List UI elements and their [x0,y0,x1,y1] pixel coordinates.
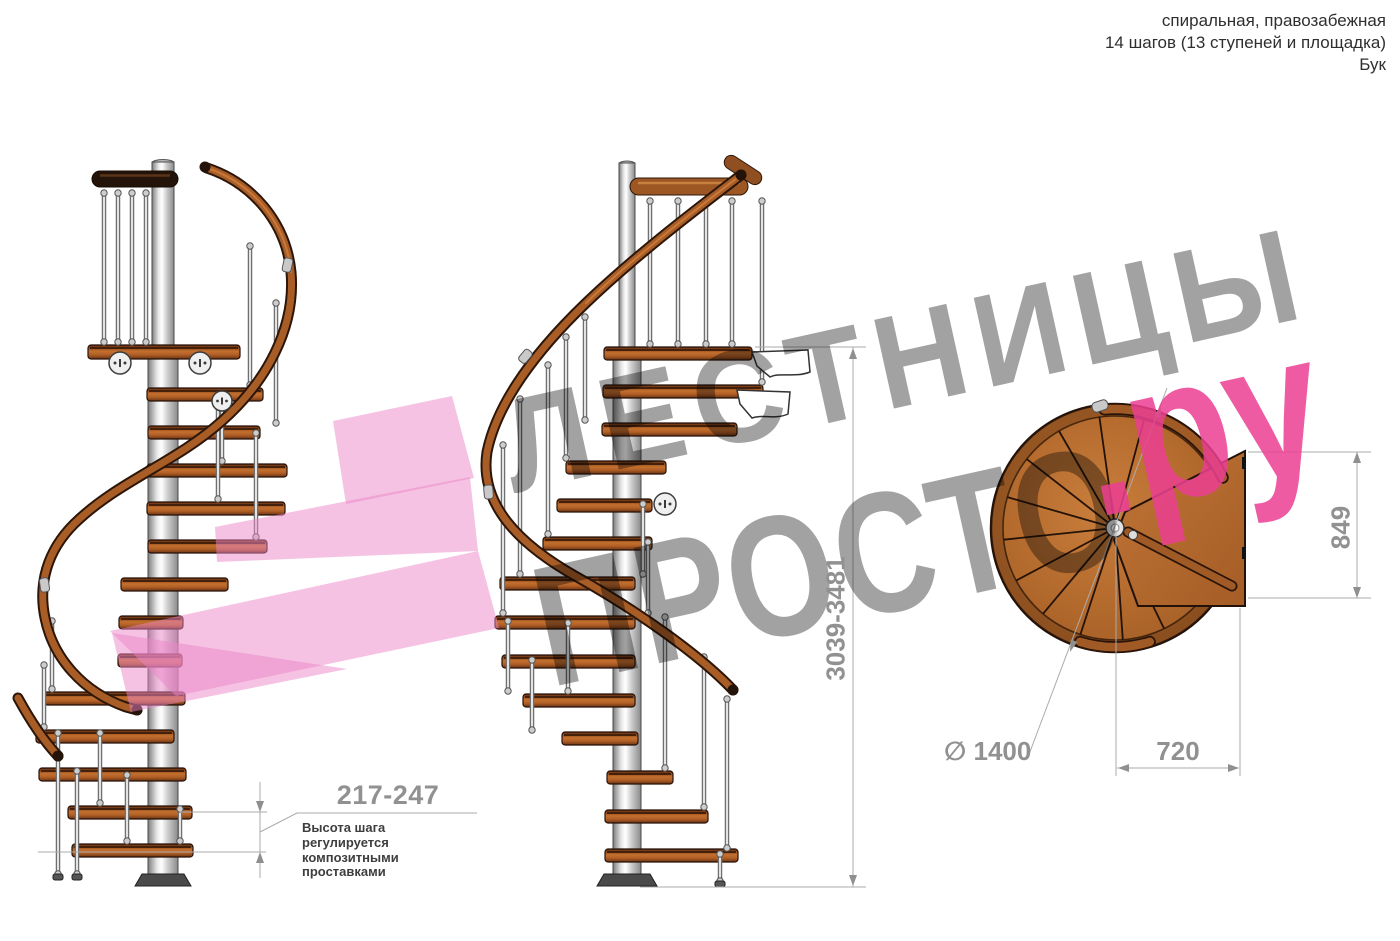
note-line: регулируется [302,836,462,851]
base-flange-left [53,874,191,886]
dimension-arrows [256,348,1361,886]
staircase-technical-drawing [0,0,1400,941]
dimension-total-height: 3039-3481 [821,538,852,700]
top-handrail-middle [630,153,764,195]
dimension-step-note: Высота шага регулируется композитными пр… [302,821,462,880]
center-pole-lower [148,345,178,877]
tread [566,461,666,474]
plan-center-pole [1106,519,1124,537]
watermark-word-ru: .ру [929,272,1400,578]
tread [562,732,638,745]
center-pole-upper [619,163,635,349]
tread [147,464,287,477]
drawing-sheet: ЛЕСТНИЦЫ ПРОСТО .ру 217-247 Высота шага … [0,0,1400,941]
tread [557,499,652,512]
plan-view [991,399,1246,652]
title-steps: 14 шагов (13 ступеней и площадка) [1105,32,1386,54]
spiral-handrail-middle [483,170,746,696]
staircase-side-view-left [18,160,293,887]
tread-brackets-middle [737,350,810,418]
treads-left-view [36,345,287,857]
note-line: проставками [302,865,462,880]
center-pole-upper [152,162,174,347]
title-block: спиральная, правозабежная 14 шагов (13 с… [1105,10,1386,76]
title-type: спиральная, правозабежная [1105,10,1386,32]
tread [88,345,240,359]
note-line: композитными [302,851,462,866]
watermark-word-lestnitsy: ЛЕСТНИЦЫ [473,203,1336,517]
tread [605,810,708,823]
plan-handrail-arcs [1080,399,1223,647]
pink-logo-arrow [0,0,1400,941]
staircase-side-view-middle [483,153,810,887]
balusters-left-view [41,190,279,877]
tread [500,577,635,590]
title-material: Бук [1105,54,1386,76]
dimension-platform-depth: 849 [1326,468,1357,588]
base-flange-middle [597,874,725,887]
plan-outer-circle [991,404,1239,652]
dimension-diameter: ∅ 1400 [944,736,1084,767]
watermark-word-prosto: ПРОСТО [499,412,1161,718]
tread [502,655,635,668]
spiral-handrail-left [18,162,293,762]
tread [147,388,263,401]
tread [119,616,183,629]
tread [36,730,174,743]
dimension-step-height: 217-247 [297,780,479,811]
plan-straight-rail [1128,531,1232,587]
tread [602,423,737,436]
tread [523,694,635,707]
pole-cap [152,160,174,167]
tread [607,771,673,784]
tread [39,768,186,781]
plan-tread-wedges [1004,417,1221,640]
tread [605,849,738,862]
tread [148,426,260,439]
balusters-middle-view [500,198,765,884]
center-pole-lower [613,347,641,877]
tread [121,578,228,591]
tread [543,537,652,550]
tread [604,347,752,360]
mounting-discs-left [109,352,232,411]
mounting-disc-middle [654,493,676,515]
tread [44,692,185,705]
dimension-lines [38,347,1371,887]
treads-middle-view [495,347,763,862]
plan-platform [1114,451,1245,606]
tread [603,385,763,398]
tread [148,540,267,553]
top-handrail-left [92,171,178,187]
tread [118,654,182,667]
tread [68,806,192,819]
tread [495,616,635,629]
note-line: Высота шага [302,821,462,836]
tread [147,502,285,515]
dimension-platform-width: 720 [1128,736,1228,767]
tread [72,844,193,857]
